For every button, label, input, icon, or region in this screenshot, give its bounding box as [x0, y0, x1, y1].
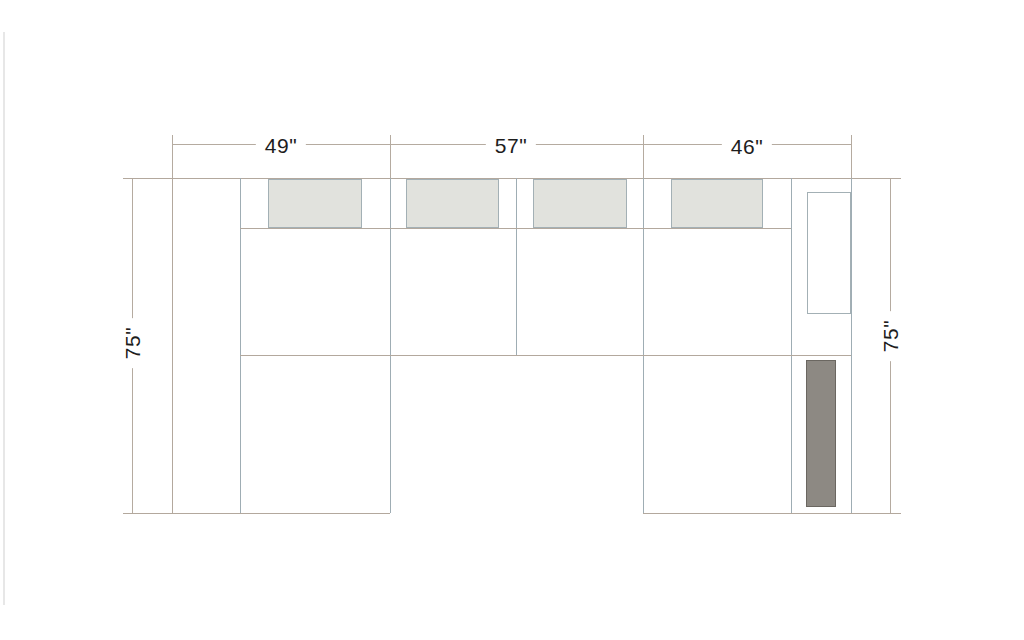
dim-tick-left: [172, 135, 173, 178]
seat-front-line: [240, 355, 851, 356]
page-edge-line: [3, 32, 5, 605]
back-cushion-4: [671, 179, 763, 228]
back-cushion-2: [406, 179, 499, 228]
dim-tick-57-46: [643, 135, 644, 178]
dim-tick-right: [851, 135, 852, 183]
sofa-left-edge: [172, 178, 173, 513]
seat-divider-2: [516, 178, 517, 355]
dim-label-left-75: 75": [122, 318, 143, 368]
back-cushion-1: [268, 179, 362, 228]
right-arm-accent-rect: [806, 360, 836, 507]
dim-label-49: 49": [256, 135, 306, 156]
right-arm-panel: [807, 192, 851, 314]
sofa-bottom-edge-right-chaise: [643, 513, 901, 514]
backrest-line: [240, 228, 791, 229]
dim-label-57: 57": [486, 135, 536, 156]
sofa-right-edge: [851, 178, 852, 514]
dim-label-right-75: 75": [880, 311, 901, 361]
back-cushion-3: [533, 179, 627, 228]
sofa-bottom-edge-left-chaise: [123, 513, 390, 514]
dim-tick-49-57: [390, 135, 391, 178]
right-arm-inner-line: [791, 178, 792, 513]
dim-label-46: 46": [722, 136, 772, 157]
sofa-dimension-diagram: 49" 57" 46" 75" 75": [0, 0, 1024, 640]
